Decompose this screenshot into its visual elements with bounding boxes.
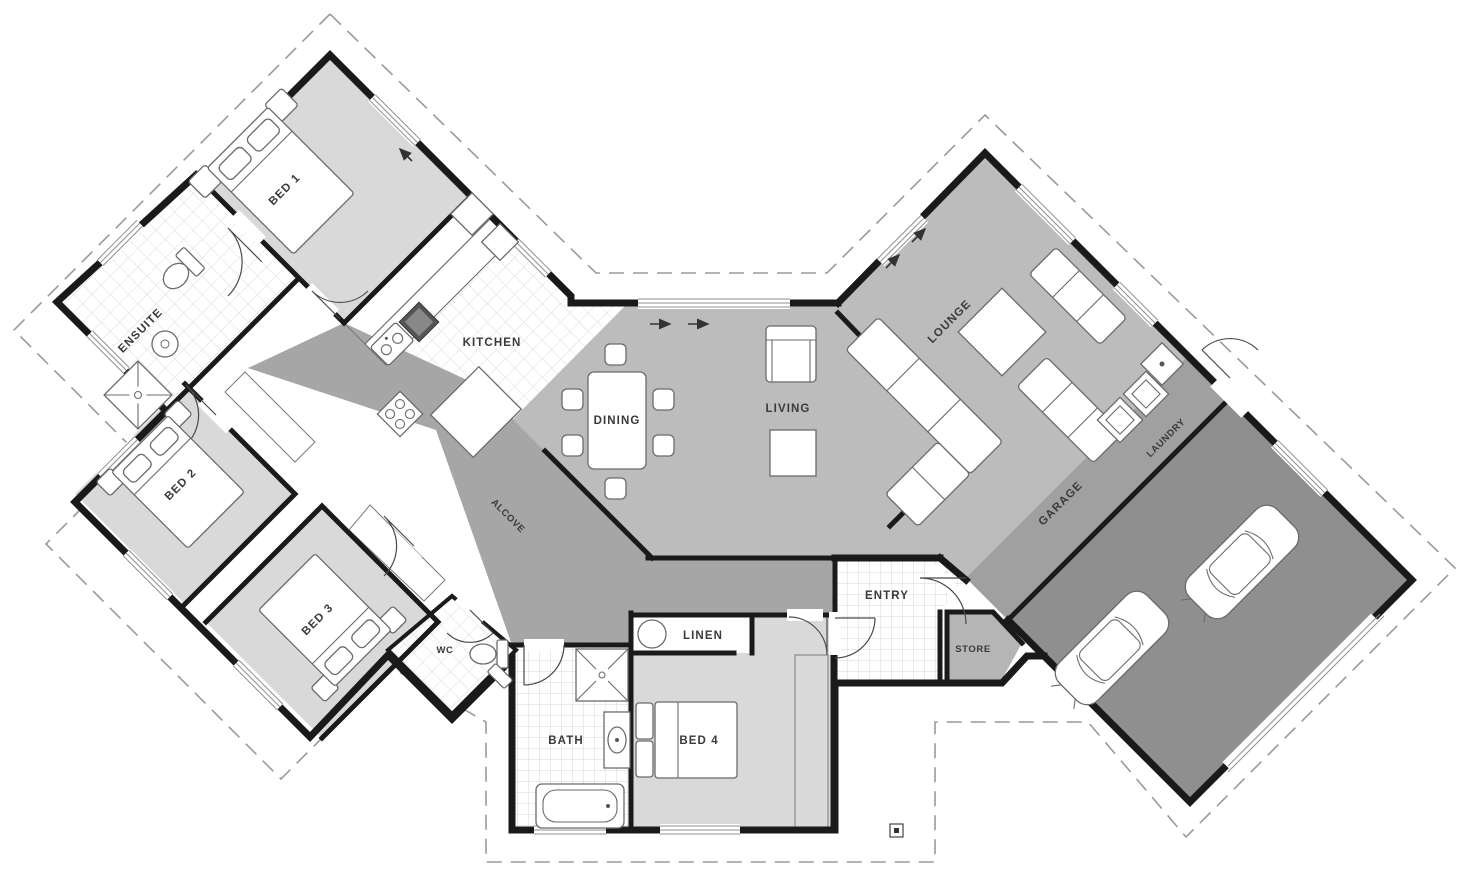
linen-cylinder [638,620,666,648]
deck-post [890,824,903,837]
ensuite-basin [152,331,178,357]
bath-tub [536,784,624,828]
label-dining: DINING [594,415,641,427]
label-kitchen: KITCHEN [463,337,522,349]
bath-shower [576,649,628,701]
label-store: STORE [955,644,991,655]
living-side-table [770,430,816,476]
floor-plan-drawing: BED 1 ENSUITE BED 2 BED 3 WC KITCHEN ALC… [0,0,1480,885]
living-armchair [766,326,816,382]
label-living: LIVING [766,403,811,415]
label-bath: BATH [548,735,584,747]
label-wc: WC [436,645,453,656]
floor-plan-page: BED 1 ENSUITE BED 2 BED 3 WC KITCHEN ALC… [0,0,1480,885]
label-entry: ENTRY [865,590,909,602]
label-bed4: BED 4 [679,735,718,747]
bath-vanity [604,712,630,768]
label-linen: LINEN [683,630,723,642]
